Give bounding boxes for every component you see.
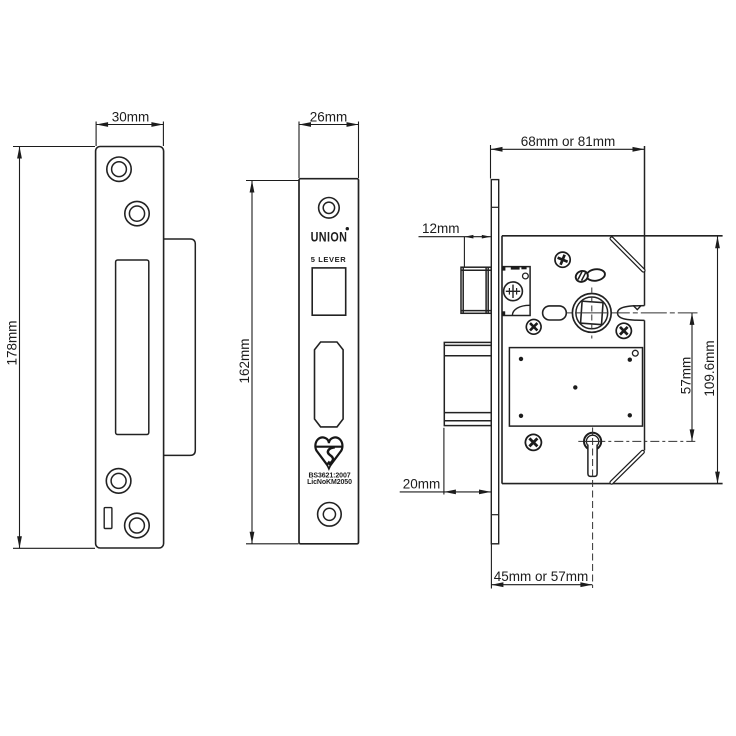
svg-text:12mm: 12mm	[422, 221, 460, 236]
svg-text:178mm: 178mm	[4, 320, 19, 365]
svg-text:20mm: 20mm	[403, 477, 441, 492]
svg-text:26mm: 26mm	[310, 110, 348, 125]
svg-text:LicNoKM2050: LicNoKM2050	[307, 479, 352, 486]
svg-text:68mm or 81mm: 68mm or 81mm	[521, 134, 616, 149]
svg-text:5 LEVER: 5 LEVER	[311, 255, 346, 264]
svg-text:30mm: 30mm	[112, 110, 150, 125]
svg-text:162mm: 162mm	[237, 338, 252, 383]
svg-text:109.6mm: 109.6mm	[702, 340, 717, 396]
svg-text:45mm or 57mm: 45mm or 57mm	[494, 569, 589, 584]
svg-text:57mm: 57mm	[678, 357, 693, 395]
svg-text:UNION: UNION	[311, 229, 348, 244]
